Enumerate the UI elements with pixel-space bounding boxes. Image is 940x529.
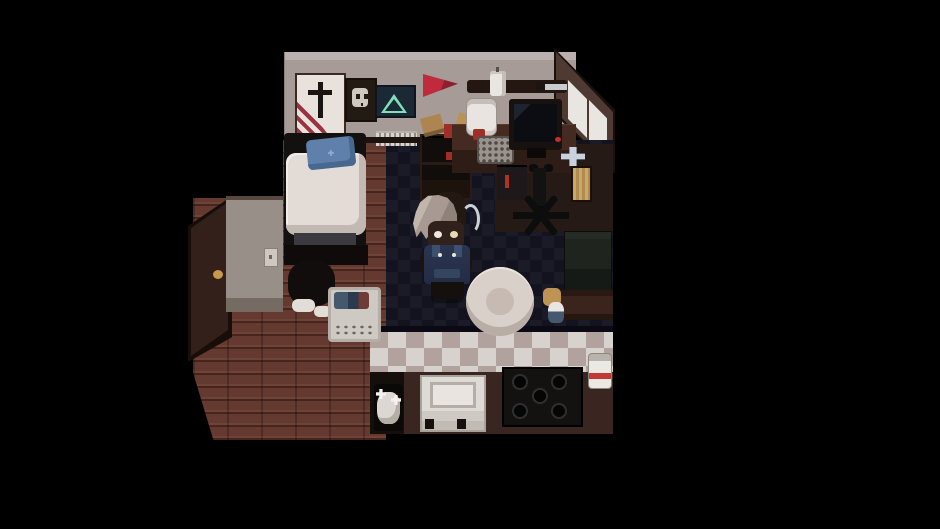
desk-led xyxy=(555,137,561,142)
leaning-board xyxy=(571,166,592,202)
office-chair-base xyxy=(513,200,569,230)
player-legs xyxy=(431,282,464,299)
bed-footboard xyxy=(284,245,368,265)
floor-pouf xyxy=(466,267,534,336)
monitor-stand xyxy=(527,148,546,158)
under-desk-unit xyxy=(497,165,527,200)
table-leg-right xyxy=(457,419,466,429)
toy-doll xyxy=(548,302,564,323)
sock-left xyxy=(292,299,315,312)
player-eye-left xyxy=(434,231,442,238)
poster-triangle xyxy=(375,85,416,118)
door-handle xyxy=(213,270,223,279)
player-overalls xyxy=(424,245,470,284)
stove xyxy=(502,367,583,427)
player-eye-right xyxy=(450,231,458,238)
bed-pillow xyxy=(306,136,357,171)
game-viewport[interactable] xyxy=(0,0,940,529)
light-switch xyxy=(264,248,278,267)
table-leg-left xyxy=(425,419,434,429)
knife-blade xyxy=(545,84,567,90)
couch xyxy=(564,231,612,291)
cat xyxy=(377,392,400,424)
monitor xyxy=(509,99,562,150)
laundry-clothes xyxy=(334,292,369,309)
player-button-right xyxy=(452,253,456,257)
cabinet xyxy=(561,290,613,320)
poster-skull xyxy=(345,78,377,122)
player-button-left xyxy=(438,253,442,257)
door xyxy=(191,202,228,356)
mask-above-door xyxy=(186,40,283,198)
hanging-mug xyxy=(490,71,506,96)
pet-bowl xyxy=(588,353,612,389)
